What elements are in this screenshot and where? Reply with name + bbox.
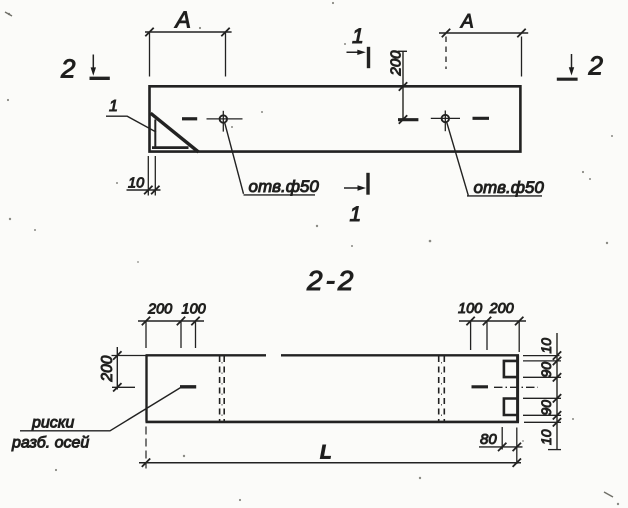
svg-text:2: 2	[588, 51, 604, 81]
svg-text:100: 100	[458, 301, 482, 317]
svg-text:риски: риски	[31, 415, 74, 432]
svg-text:90: 90	[538, 362, 554, 378]
svg-text:200: 200	[99, 355, 116, 382]
svg-text:100: 100	[182, 302, 206, 318]
svg-text:отв.ф50: отв.ф50	[474, 178, 545, 197]
svg-text:2-2: 2-2	[306, 265, 356, 296]
svg-text:80: 80	[480, 431, 497, 448]
svg-text:L: L	[320, 443, 332, 464]
svg-text:1: 1	[109, 98, 118, 115]
svg-text:A: A	[460, 12, 474, 33]
svg-text:90: 90	[538, 400, 554, 416]
svg-text:1: 1	[350, 203, 362, 226]
svg-text:200: 200	[147, 302, 172, 318]
svg-text:10: 10	[538, 338, 554, 354]
svg-text:отв.ф50: отв.ф50	[249, 177, 320, 196]
svg-text:10: 10	[128, 176, 144, 192]
svg-text:разб. осей: разб. осей	[11, 435, 89, 452]
svg-text:200: 200	[388, 50, 405, 77]
svg-text:A: A	[174, 7, 191, 33]
svg-text:200: 200	[489, 301, 514, 317]
svg-text:1: 1	[352, 25, 364, 48]
svg-text:10: 10	[538, 429, 554, 445]
svg-text:2: 2	[60, 54, 76, 84]
